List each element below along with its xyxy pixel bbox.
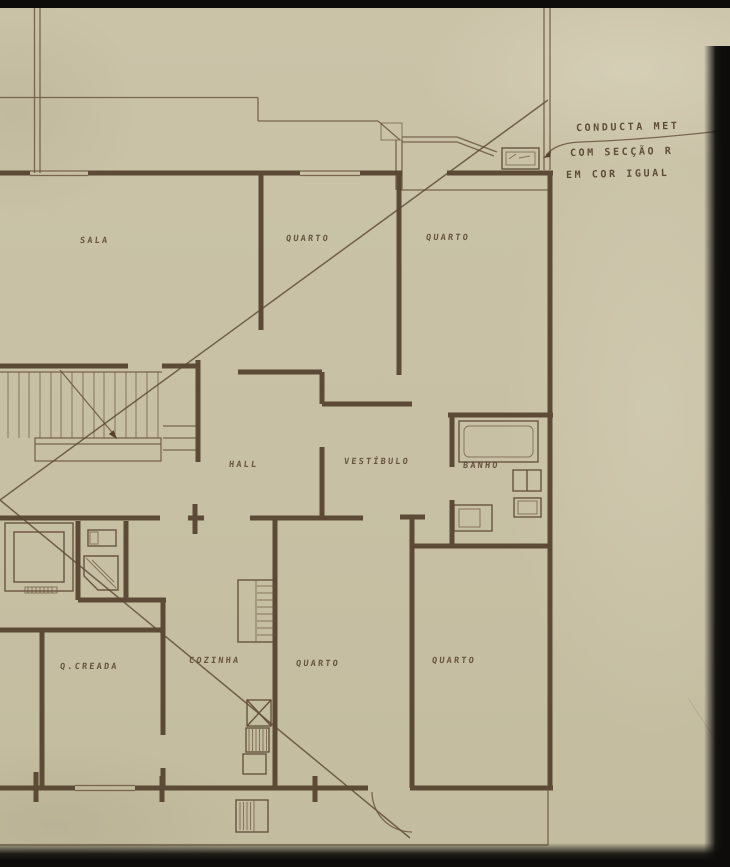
room-label-quarto-1: QUARTO bbox=[285, 234, 330, 244]
room-label-cozinha: COZINHA bbox=[188, 656, 240, 666]
scan-border-top bbox=[0, 0, 730, 8]
annotation-line-3: EM COR IGUAL bbox=[566, 168, 670, 181]
scan-border-bottom bbox=[0, 843, 730, 867]
room-label-quarto-2: QUARTO bbox=[425, 233, 470, 243]
scanned-floor-plan: SALA QUARTO QUARTO HALL VESTÍBULO BANHO … bbox=[0, 0, 730, 867]
room-label-vestibulo: VESTÍBULO bbox=[343, 457, 410, 467]
annotation-line-2: COM SECÇÃO R bbox=[570, 146, 674, 159]
room-label-quarto-4: QUARTO bbox=[431, 656, 476, 666]
scan-border-right bbox=[704, 46, 730, 867]
room-label-quarto-criada: Q.CREADA bbox=[59, 662, 119, 672]
room-label-hall: HALL bbox=[228, 460, 258, 470]
annotation-line-1: CONDUCTA MET bbox=[576, 121, 680, 134]
room-label-sala: SALA bbox=[79, 236, 109, 246]
room-label-quarto-3: QUARTO bbox=[295, 659, 340, 669]
room-label-banho: BANHO bbox=[462, 461, 500, 471]
